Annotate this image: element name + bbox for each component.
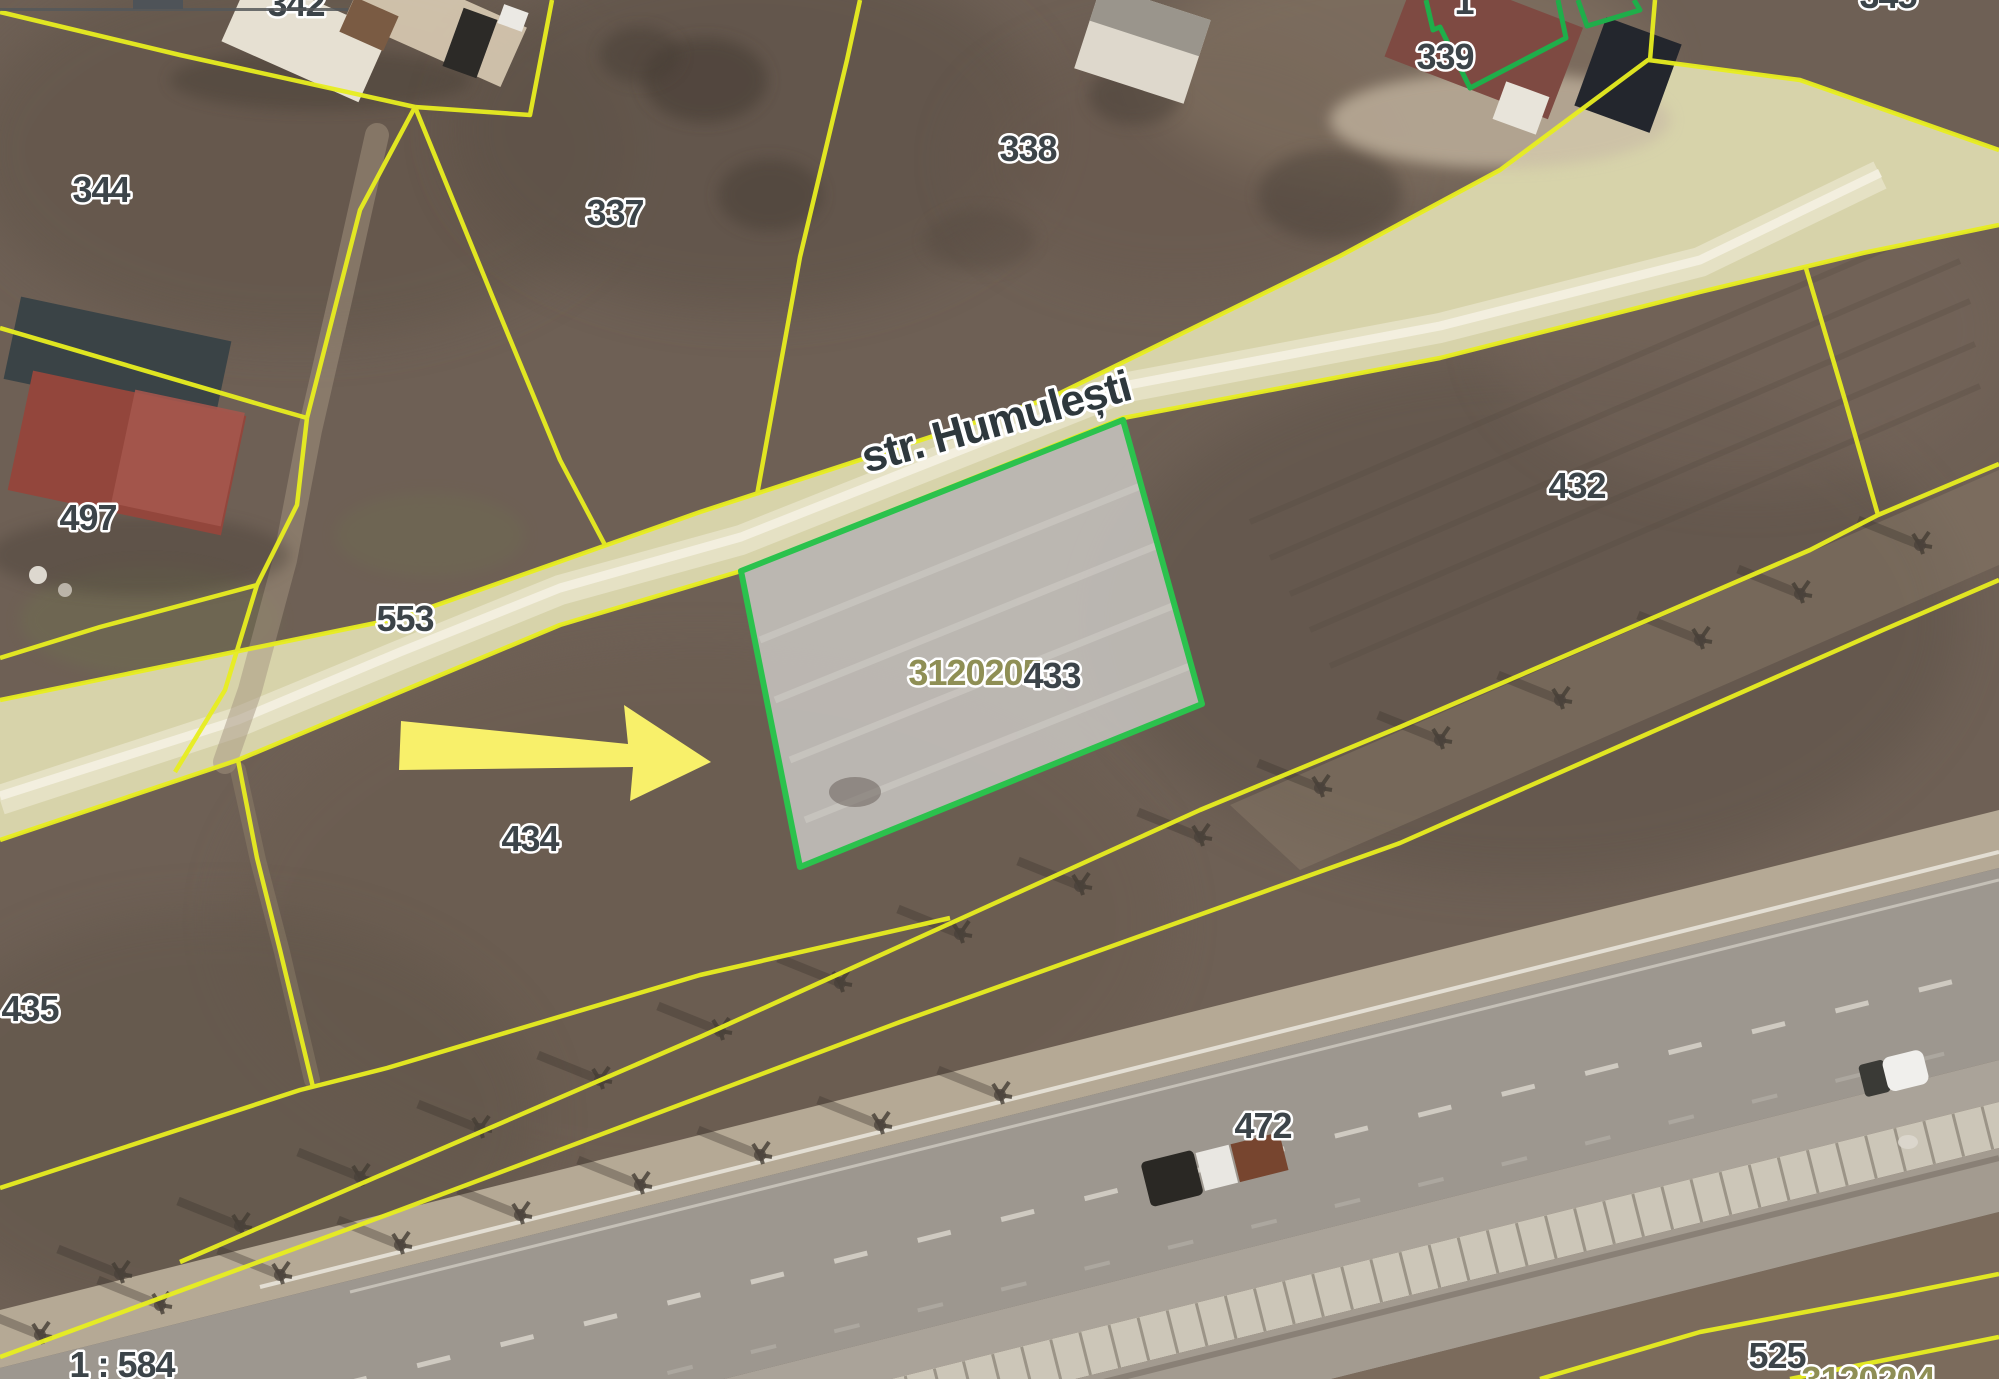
- map-scale-text: 1 : 584: [69, 1344, 175, 1379]
- parcel-label-553: 553: [376, 598, 433, 639]
- parcel-label-472: 472: [1234, 1105, 1291, 1146]
- satellite-map: 342 344 337 338 339 345 1 432 553 312020…: [0, 0, 1999, 1379]
- parcel-label-435: 435: [1, 988, 59, 1029]
- parcel-label-525: 525: [1748, 1335, 1806, 1376]
- house-number-label: 1: [1454, 0, 1474, 22]
- parcel-label-337: 337: [586, 192, 643, 233]
- cadastral-id-prefix: 3120205: [908, 652, 1042, 693]
- top-edge-bar: [133, 0, 183, 9]
- parcel-label-338: 338: [999, 128, 1056, 169]
- parcel-label-344: 344: [72, 169, 130, 210]
- cadastral-id-prefix-partial: 3120204: [1801, 1359, 1935, 1379]
- parcel-label-434: 434: [501, 818, 559, 859]
- parcel-label-339: 339: [1416, 36, 1473, 77]
- map-canvas[interactable]: 342 344 337 338 339 345 1 432 553 312020…: [0, 0, 1999, 1379]
- parcel-label-345: 345: [1859, 0, 1917, 16]
- road-marker: [1898, 1135, 1918, 1149]
- parcel-label-497: 497: [59, 497, 116, 538]
- parcel-label-432: 432: [1548, 465, 1605, 506]
- parcel-label-342: 342: [267, 0, 324, 24]
- parcel-label-433: 433: [1023, 655, 1080, 696]
